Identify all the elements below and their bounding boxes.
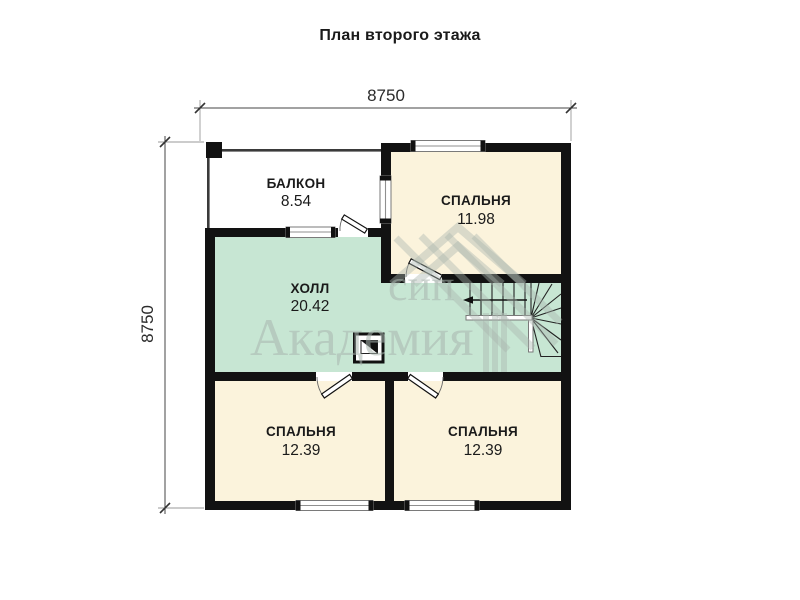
room-label-bedroom-right: СПАЛЬНЯ (413, 424, 553, 440)
dimension-left-value: 8750 (138, 294, 158, 354)
window-icon (405, 501, 479, 511)
window-icon (411, 141, 485, 152)
window-icon (286, 227, 335, 238)
floor-plan-page: План второго этажа (0, 0, 800, 600)
window-icon (380, 176, 391, 223)
room-label-bedroom-left: СПАЛЬНЯ (231, 424, 371, 440)
chimney-icon (355, 334, 384, 362)
room-area-hall: 20.42 (240, 298, 380, 316)
window-icon (296, 501, 373, 511)
room-label-hall: ХОЛЛ (240, 281, 380, 297)
room-area-bedroom-top: 11.98 (406, 211, 546, 229)
room-area-balcony: 8.54 (226, 193, 366, 211)
room-area-bedroom-right: 12.39 (413, 442, 553, 460)
room-area-bedroom-left: 12.39 (231, 442, 371, 460)
room-label-bedroom-top: СПАЛЬНЯ (406, 193, 546, 209)
room-label-balcony: БАЛКОН (226, 176, 366, 192)
dimension-top (194, 100, 577, 141)
dimension-left (158, 136, 204, 514)
dimension-top-value: 8750 (356, 86, 416, 106)
